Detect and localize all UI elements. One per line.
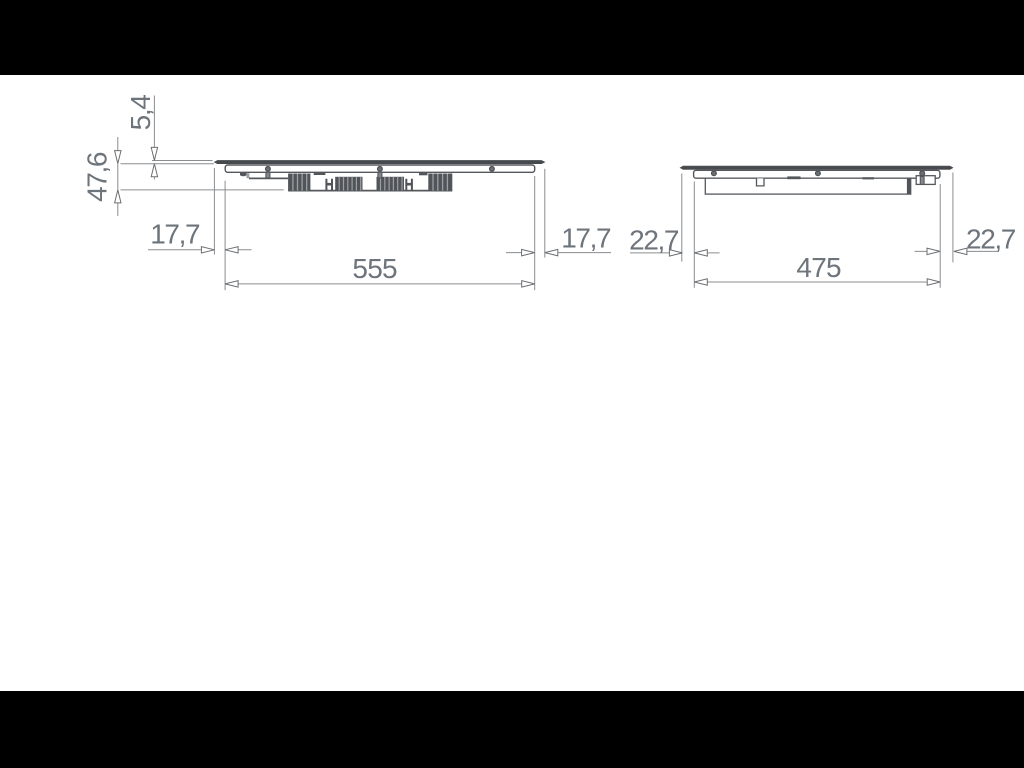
svg-text:555: 555 xyxy=(352,253,397,284)
svg-text:47,6: 47,6 xyxy=(82,152,113,202)
svg-text:17,7: 17,7 xyxy=(150,219,200,250)
svg-text:22,7: 22,7 xyxy=(629,225,679,256)
svg-text:5,4: 5,4 xyxy=(125,95,156,131)
svg-text:475: 475 xyxy=(796,252,841,283)
svg-text:22,7: 22,7 xyxy=(966,224,1016,255)
svg-text:17,7: 17,7 xyxy=(561,223,611,254)
